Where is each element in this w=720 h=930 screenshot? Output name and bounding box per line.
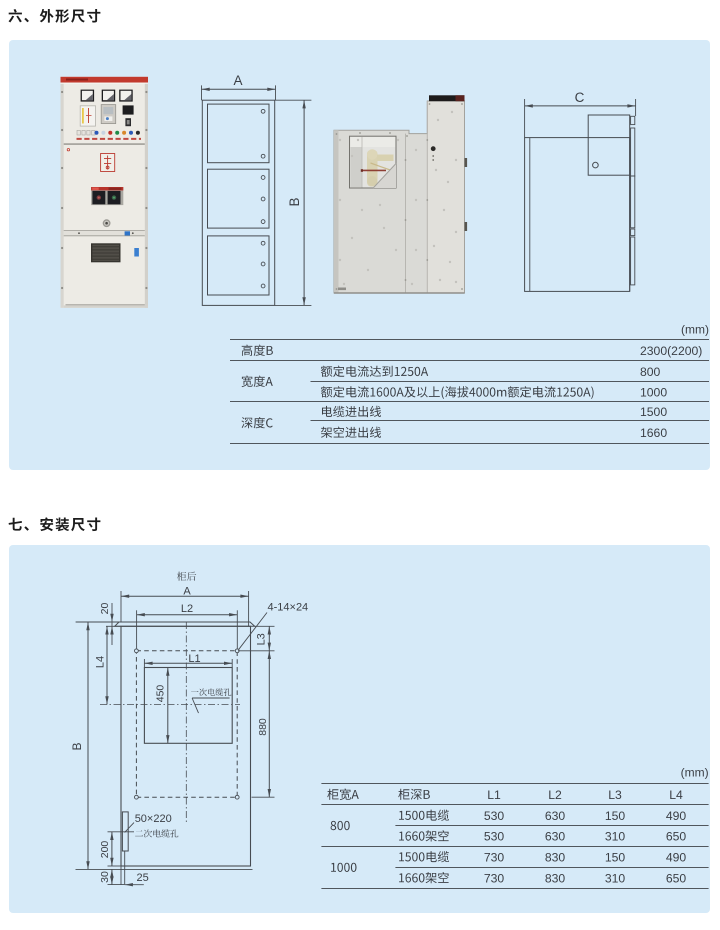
svg-text:A: A [233, 73, 242, 88]
svg-text:490: 490 [666, 850, 687, 864]
svg-text:830: 830 [545, 871, 566, 885]
svg-text:2300(2200): 2300(2200) [640, 344, 702, 358]
svg-text:L3: L3 [608, 788, 622, 802]
svg-text:630: 630 [545, 809, 566, 823]
svg-text:150: 150 [605, 809, 626, 823]
svg-text:730: 730 [484, 850, 505, 864]
svg-text:630: 630 [545, 830, 566, 844]
svg-text:310: 310 [605, 830, 626, 844]
svg-text:4-14×24: 4-14×24 [268, 602, 309, 614]
svg-text:650: 650 [666, 830, 687, 844]
svg-text:(mm): (mm) [681, 323, 709, 337]
svg-text:310: 310 [605, 871, 626, 885]
svg-text:L4: L4 [669, 788, 683, 802]
svg-text:L1: L1 [188, 653, 200, 665]
svg-text:30: 30 [99, 871, 111, 883]
svg-text:530: 530 [484, 809, 505, 823]
svg-text:25: 25 [137, 872, 149, 884]
svg-text:490: 490 [666, 809, 687, 823]
svg-text:200: 200 [99, 841, 111, 859]
svg-text:C: C [575, 90, 585, 105]
svg-text:880: 880 [257, 718, 269, 736]
svg-text:L1: L1 [487, 788, 501, 802]
svg-text:1500: 1500 [640, 405, 667, 419]
svg-text:A: A [183, 586, 191, 598]
svg-text:530: 530 [484, 830, 505, 844]
svg-text:B: B [70, 742, 84, 750]
svg-text:830: 830 [545, 850, 566, 864]
svg-text:L2: L2 [548, 788, 562, 802]
svg-text:1660: 1660 [640, 426, 667, 440]
svg-text:730: 730 [484, 871, 505, 885]
svg-text:150: 150 [605, 850, 626, 864]
svg-text:L2: L2 [181, 603, 193, 615]
svg-text:L4: L4 [94, 656, 106, 668]
svg-text:B: B [287, 197, 302, 206]
svg-text:L3: L3 [255, 633, 267, 645]
svg-text:(mm): (mm) [681, 766, 709, 780]
svg-text:800: 800 [640, 365, 661, 379]
svg-text:650: 650 [666, 871, 687, 885]
svg-text:20: 20 [99, 603, 111, 615]
svg-text:450: 450 [155, 685, 167, 703]
svg-text:1000: 1000 [640, 386, 667, 400]
svg-text:50×220: 50×220 [135, 813, 172, 825]
